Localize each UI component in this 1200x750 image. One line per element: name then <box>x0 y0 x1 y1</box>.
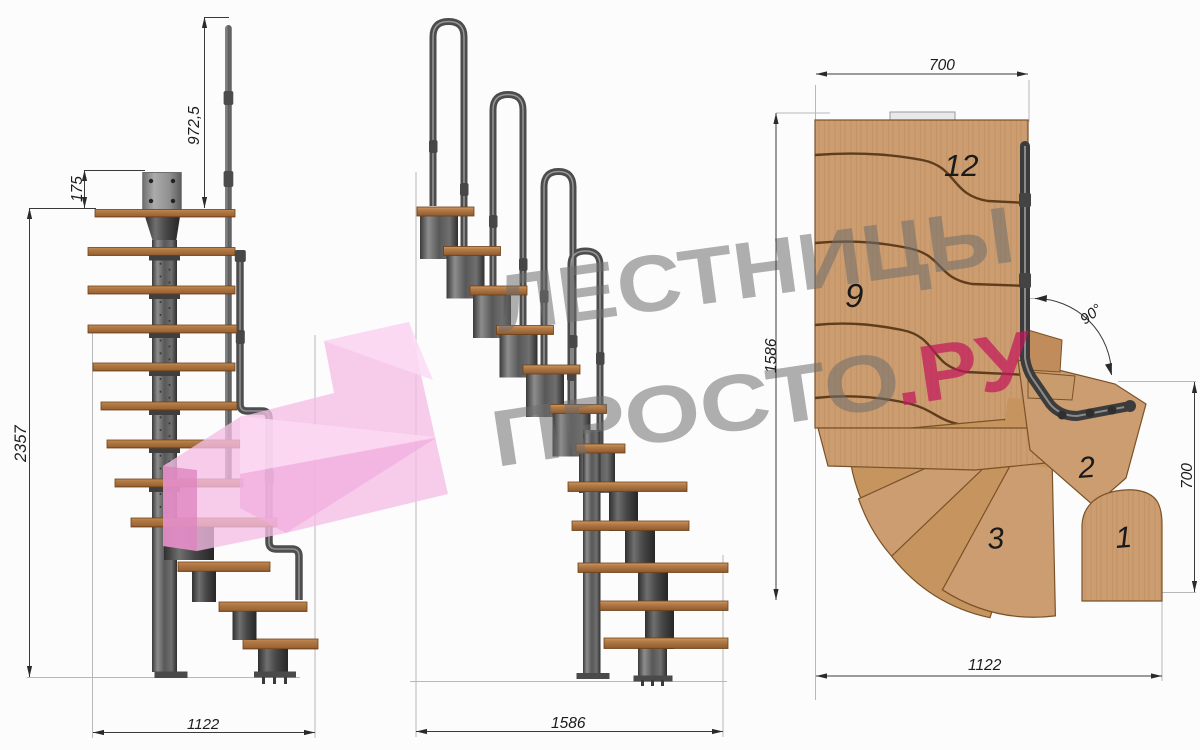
svg-text:1586: 1586 <box>551 715 586 732</box>
svg-text:12: 12 <box>944 148 978 183</box>
svg-text:2357: 2357 <box>12 424 30 463</box>
svg-text:1: 1 <box>1114 521 1133 555</box>
svg-text:3: 3 <box>986 522 1005 556</box>
svg-text:9: 9 <box>845 277 863 314</box>
svg-text:175: 175 <box>69 176 86 202</box>
svg-text:1122: 1122 <box>968 657 1002 674</box>
svg-text:700: 700 <box>929 57 955 74</box>
svg-text:972,5: 972,5 <box>186 106 203 145</box>
svg-text:1586: 1586 <box>763 338 780 373</box>
svg-text:700: 700 <box>1179 463 1196 489</box>
svg-text:1122: 1122 <box>187 716 220 733</box>
svg-text:2: 2 <box>1076 451 1096 485</box>
